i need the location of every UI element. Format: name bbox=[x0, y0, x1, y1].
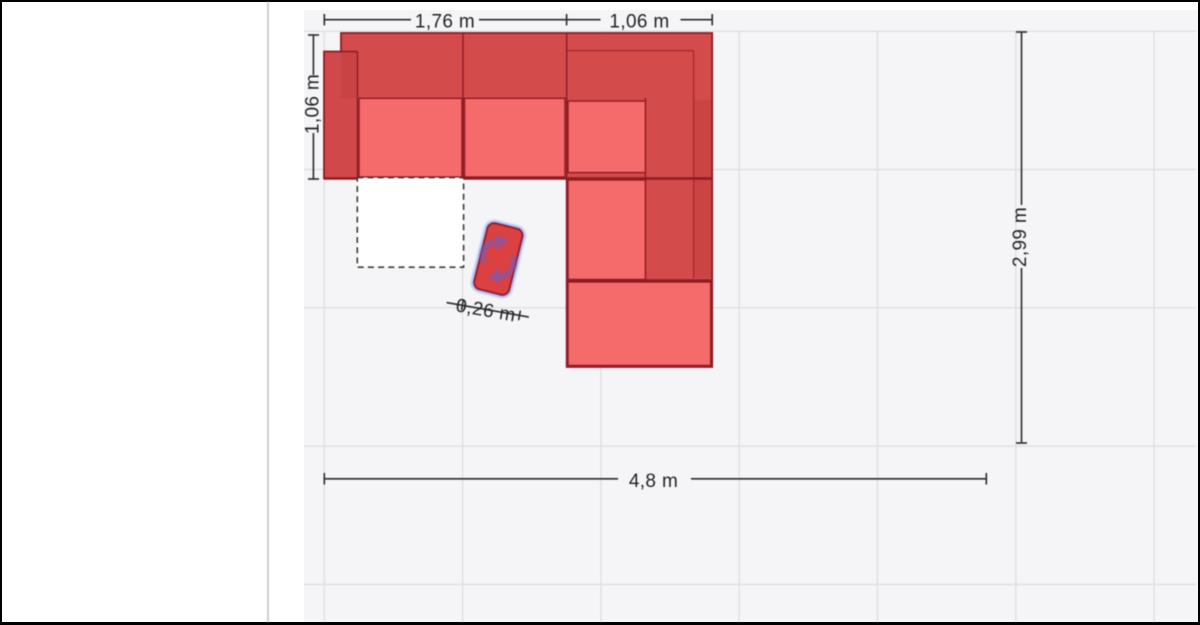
svg-text:0,26 m: 0,26 m bbox=[454, 295, 517, 326]
svg-text:2,99 m: 2,99 m bbox=[1010, 207, 1031, 267]
svg-text:1,06 m: 1,06 m bbox=[304, 74, 323, 134]
svg-text:1,76 m: 1,76 m bbox=[415, 11, 475, 32]
svg-text:1,06 m: 1,06 m bbox=[609, 11, 669, 32]
svg-text:4,8 m: 4,8 m bbox=[629, 471, 678, 492]
